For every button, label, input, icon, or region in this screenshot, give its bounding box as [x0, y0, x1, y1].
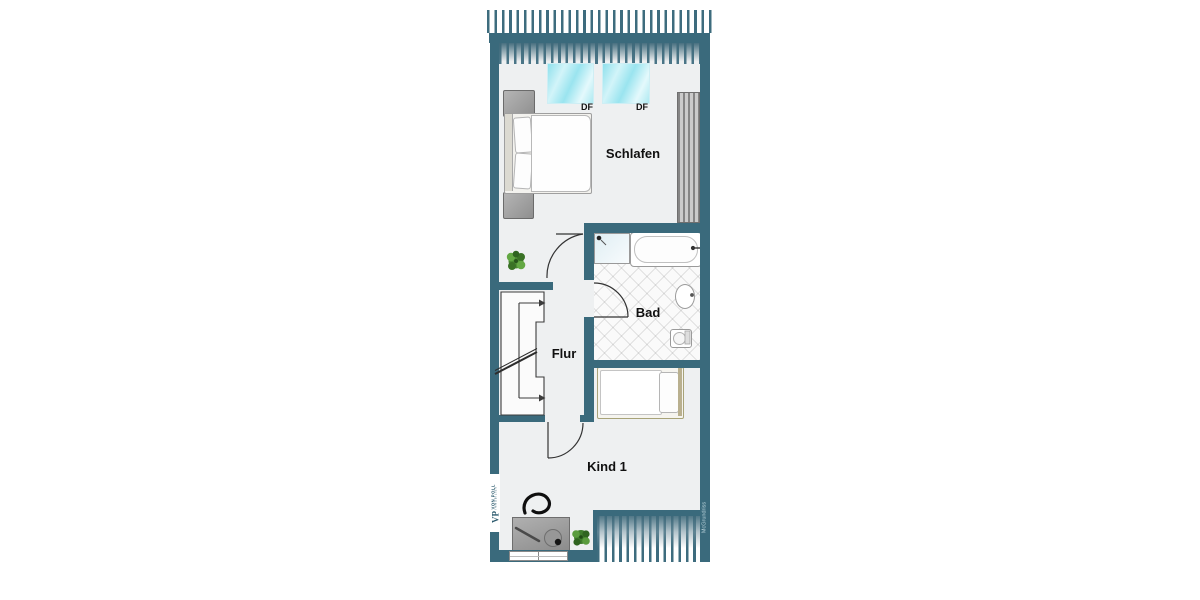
- floorplan: Schlafen Bad Flur Kind 1 DF DF VP VON PO…: [487, 10, 713, 565]
- desk-chair: [524, 494, 549, 513]
- staircase-outline: [501, 292, 544, 415]
- door-arc-bad: [594, 283, 628, 317]
- credit-text: McGrundriss: [699, 487, 708, 547]
- plant-icon-kind1: [572, 530, 590, 546]
- door-arc-kind1: [548, 423, 583, 458]
- desk-ruler: [516, 528, 539, 541]
- skylight-label-2: DF: [624, 102, 648, 112]
- room-label-kind1: Kind 1: [575, 459, 639, 474]
- staircase: [495, 292, 546, 415]
- credit-mcgrundriss: McGrundriss: [699, 487, 708, 547]
- skylight-label-1: DF: [569, 102, 593, 112]
- plan-linework: [487, 10, 713, 565]
- shower-head-icon: [597, 236, 602, 241]
- door-arc-schlafen: [547, 234, 583, 278]
- fixture-details: [597, 236, 700, 344]
- toilet-tank: [685, 331, 690, 344]
- room-label-flur: Flur: [539, 346, 589, 361]
- vonpoll-sub: IMMOBILIEN: [495, 484, 498, 509]
- desk-items: [516, 528, 562, 547]
- plant-icon-schlafen: [507, 251, 526, 270]
- room-label-schlafen: Schlafen: [593, 146, 673, 161]
- vonpoll-logo-text: VP VON POLL IMMOBILIEN: [489, 474, 500, 532]
- vonpoll-monogram: VP: [490, 510, 500, 522]
- sink-faucet-icon: [690, 293, 694, 297]
- vonpoll-logo: VP VON POLL IMMOBILIEN: [489, 474, 500, 532]
- floorplan-canvas: Schlafen Bad Flur Kind 1 DF DF VP VON PO…: [0, 0, 1200, 600]
- room-label-bad: Bad: [628, 305, 668, 320]
- desk-lamp: [555, 539, 561, 545]
- bathtub-faucet-icon: [691, 246, 695, 250]
